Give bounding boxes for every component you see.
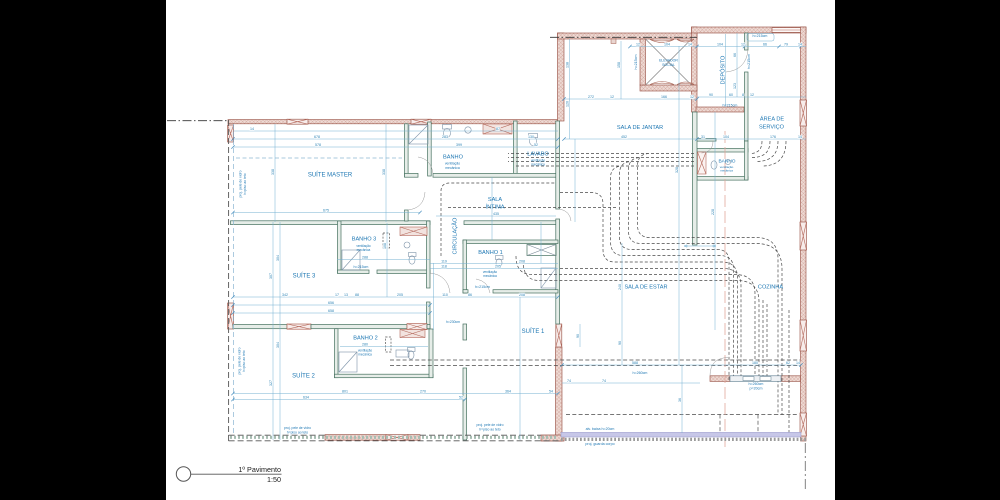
svg-text:176: 176 [770,135,776,139]
svg-text:SUÍTE MASTER: SUÍTE MASTER [308,172,353,179]
svg-text:17: 17 [335,293,339,297]
svg-text:31: 31 [701,135,705,139]
svg-text:327: 327 [269,380,273,386]
svg-text:proj. pele de vidro: proj. pele de vidro [284,426,311,430]
svg-text:304: 304 [276,342,280,348]
svg-text:8: 8 [742,93,744,97]
svg-text:272: 272 [588,95,594,99]
svg-text:BANHO 3: BANHO 3 [352,237,377,243]
svg-text:ELEVADOR: ELEVADOR [659,59,678,63]
svg-text:h=215cm: h=215cm [354,265,369,269]
svg-text:BANHO 1: BANHO 1 [478,250,503,256]
svg-text:alv. baixa h=20cm: alv. baixa h=20cm [586,427,615,431]
svg-text:304: 304 [276,255,280,261]
svg-text:90: 90 [618,341,622,345]
svg-text:588: 588 [632,361,638,365]
svg-text:104: 104 [717,43,723,47]
svg-text:SUÍTE 3: SUÍTE 3 [293,273,316,280]
svg-text:120: 120 [566,101,570,107]
svg-text:240: 240 [618,284,622,290]
svg-text:12: 12 [741,43,745,47]
svg-text:130: 130 [528,135,534,139]
svg-text:110: 110 [442,293,448,297]
svg-text:36: 36 [678,398,682,402]
svg-text:399: 399 [456,143,462,147]
svg-text:158: 158 [617,62,621,68]
svg-text:mecânica: mecânica [531,163,545,167]
svg-text:14: 14 [796,361,800,365]
svg-text:h=230cm: h=230cm [446,320,460,324]
svg-text:SOCIAL: SOCIAL [662,63,675,67]
svg-text:BANHO 2: BANHO 2 [353,336,378,342]
svg-text:CIRCULAÇÃO: CIRCULAÇÃO [452,217,459,254]
svg-text:BANHO: BANHO [718,159,735,165]
svg-text:DEPÓSITO: DEPÓSITO [720,55,727,84]
svg-text:13: 13 [344,293,348,297]
svg-text:h=piso ao teto: h=piso ao teto [242,350,246,372]
svg-text:675: 675 [323,209,329,213]
svg-text:14: 14 [798,135,802,139]
svg-text:801: 801 [342,390,348,394]
svg-text:mecânica: mecânica [358,353,372,357]
svg-text:1:50: 1:50 [267,475,281,484]
svg-text:66: 66 [733,53,737,57]
svg-text:SALA DE ESTAR: SALA DE ESTAR [624,285,667,291]
svg-text:12: 12 [610,95,614,99]
svg-text:mecânica: mecânica [445,166,460,170]
svg-text:mecânica: mecânica [357,248,371,252]
svg-text:90: 90 [709,93,713,97]
svg-text:h=260cm: h=260cm [749,382,764,386]
svg-text:658: 658 [328,309,334,313]
svg-text:435: 435 [493,212,499,216]
svg-text:mecânica: mecânica [483,274,497,278]
svg-text:SUÍTE 1: SUÍTE 1 [522,328,545,335]
svg-text:14: 14 [798,43,802,47]
svg-text:12: 12 [636,43,640,47]
svg-text:SALA DE JANTAR: SALA DE JANTAR [617,125,663,131]
svg-text:678: 678 [314,135,320,139]
svg-text:proj. guarda corpo: proj. guarda corpo [585,442,614,446]
svg-text:h=215cm: h=215cm [723,104,738,108]
svg-text:342: 342 [282,293,288,297]
svg-text:270: 270 [420,390,426,394]
svg-text:14: 14 [250,127,254,131]
svg-text:proj. pele de vidro: proj. pele de vidro [477,423,504,427]
svg-text:104: 104 [664,43,670,47]
svg-text:66: 66 [763,43,767,47]
svg-text:338: 338 [271,169,275,175]
svg-text:338: 338 [382,169,386,175]
svg-text:12: 12 [690,95,694,99]
svg-text:87: 87 [496,127,500,131]
svg-text:54: 54 [549,390,553,394]
svg-text:52: 52 [534,143,538,147]
svg-text:12: 12 [750,93,754,97]
svg-text:138: 138 [566,62,570,68]
svg-text:280: 280 [362,343,368,347]
svg-text:108: 108 [383,243,387,249]
svg-text:52: 52 [459,396,463,400]
svg-text:79: 79 [784,43,788,47]
svg-text:228: 228 [711,209,715,215]
svg-text:88: 88 [355,293,359,297]
svg-text:180: 180 [752,361,758,365]
svg-text:h=piso ao teto: h=piso ao teto [243,173,247,195]
svg-text:ÍNTIMA: ÍNTIMA [486,204,505,211]
svg-text:SALA: SALA [488,197,503,203]
svg-text:90: 90 [576,334,580,338]
svg-text:h=215cm: h=215cm [747,54,751,69]
svg-text:328: 328 [675,167,679,173]
svg-text:208: 208 [519,293,525,297]
svg-text:283: 283 [442,135,448,139]
svg-text:h=215cm: h=215cm [475,285,490,289]
svg-text:SERVIÇO: SERVIÇO [759,125,785,131]
svg-text:634: 634 [303,396,309,400]
svg-text:h=215cm: h=215cm [634,55,638,70]
svg-text:60: 60 [729,93,733,97]
svg-text:578: 578 [315,143,321,147]
svg-text:62: 62 [786,361,790,365]
svg-text:14: 14 [688,43,692,47]
svg-text:205: 205 [495,265,501,269]
svg-text:452: 452 [621,135,627,139]
svg-text:h=260cm: h=260cm [633,371,648,375]
svg-text:1º Pavimento: 1º Pavimento [238,465,281,474]
svg-text:ÁREA DE: ÁREA DE [760,116,785,123]
svg-text:288: 288 [362,256,368,260]
svg-text:307: 307 [269,273,273,279]
svg-text:mecânica: mecânica [720,169,733,173]
svg-text:118: 118 [441,265,447,269]
svg-text:119: 119 [441,260,447,264]
svg-text:h=215cm: h=215cm [753,34,768,38]
svg-text:h=piso ao teto: h=piso ao teto [287,430,309,434]
svg-text:166: 166 [661,95,667,99]
svg-text:SUÍTE 2: SUÍTE 2 [292,373,315,380]
svg-text:364: 364 [505,390,511,394]
svg-text:208: 208 [519,260,525,264]
svg-text:86: 86 [468,293,472,297]
svg-text:123: 123 [733,83,737,89]
svg-text:74: 74 [567,379,571,383]
svg-text:BANHO: BANHO [443,155,464,161]
svg-text:LAVABO: LAVABO [527,152,549,158]
svg-text:104: 104 [723,135,729,139]
svg-text:205: 205 [397,293,403,297]
svg-text:COZINHA: COZINHA [758,285,783,291]
svg-text:74: 74 [602,379,606,383]
svg-text:p=20cm: p=20cm [750,387,763,391]
svg-text:h=piso ao teto: h=piso ao teto [479,427,501,431]
svg-text:656: 656 [328,301,334,305]
